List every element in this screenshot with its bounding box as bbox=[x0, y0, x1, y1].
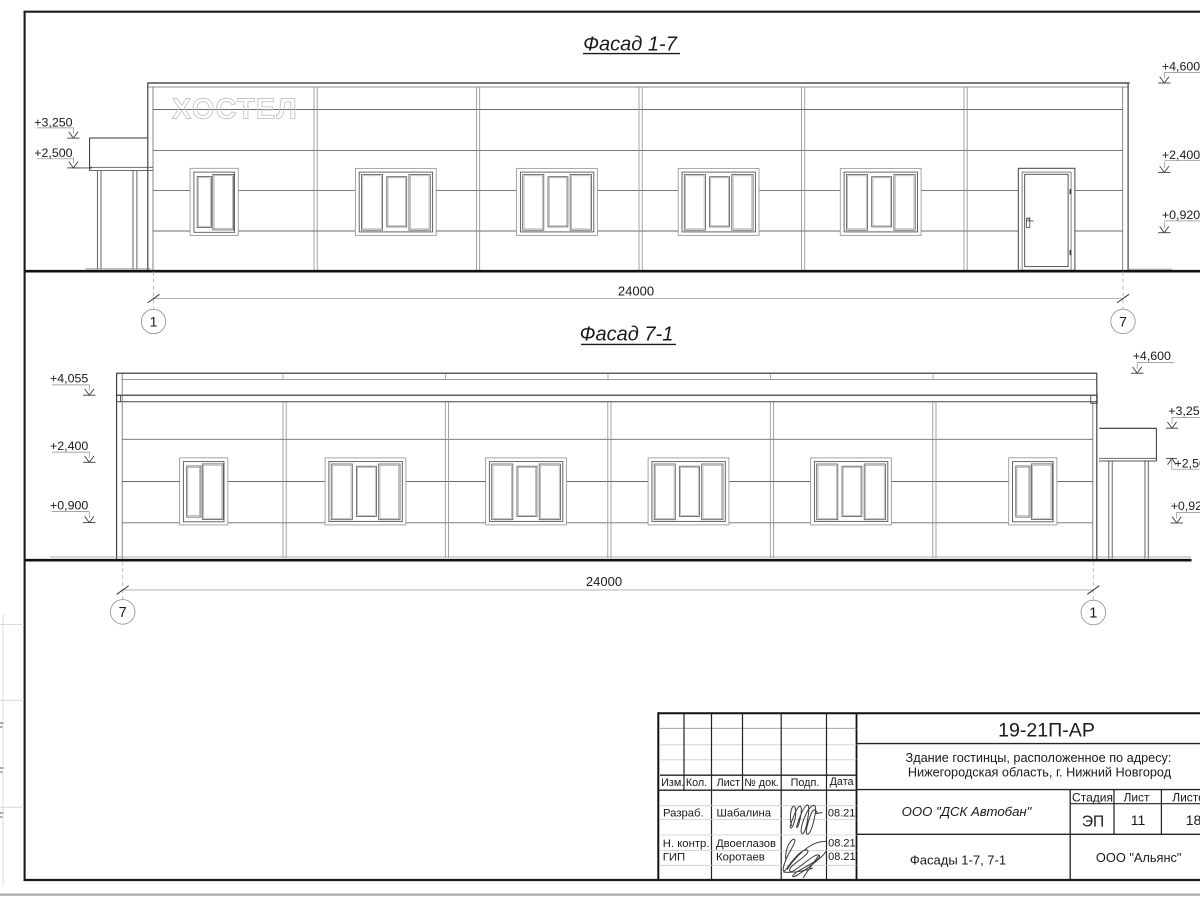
svg-text:+4,600: +4,600 bbox=[1133, 349, 1171, 363]
svg-text:08.21: 08.21 bbox=[828, 837, 856, 849]
svg-text:ООО "ДСК Автобан": ООО "ДСК Автобан" bbox=[902, 804, 1033, 819]
svg-text:Листов: Листов bbox=[1172, 791, 1200, 805]
svg-text:Кол.: Кол. bbox=[686, 777, 707, 789]
svg-text:08.21: 08.21 bbox=[828, 807, 856, 819]
svg-text:Коротаев: Коротаев bbox=[716, 851, 765, 863]
svg-text:Здание гостинцы, расположенное: Здание гостинцы, расположенное по адресу… bbox=[906, 751, 1172, 765]
svg-text:Стадия: Стадия bbox=[1072, 791, 1113, 805]
svg-text:Фасад 1-7: Фасад 1-7 bbox=[583, 34, 678, 56]
svg-text:Н. контр.: Н. контр. bbox=[663, 838, 710, 850]
svg-text:Фасад 7-1: Фасад 7-1 bbox=[580, 324, 674, 346]
svg-text:ГИП: ГИП bbox=[663, 851, 685, 863]
svg-text:+0,92: +0,92 bbox=[1171, 499, 1200, 513]
svg-text:ХОСТЕЛ: ХОСТЕЛ bbox=[172, 94, 298, 126]
svg-text:Нижегородская область, г. Нижн: Нижегородская область, г. Нижний Новгоро… bbox=[908, 765, 1172, 779]
svg-text:24000: 24000 bbox=[618, 284, 654, 299]
svg-text:19-21П-АР: 19-21П-АР bbox=[998, 719, 1095, 741]
svg-text:08.21: 08.21 bbox=[828, 851, 856, 863]
svg-text:+4,055: +4,055 bbox=[50, 372, 88, 386]
svg-text:Лист: Лист bbox=[1123, 791, 1150, 805]
svg-text:+0,920: +0,920 bbox=[1162, 208, 1200, 222]
svg-text:24000: 24000 bbox=[586, 574, 622, 589]
svg-text:+2,400: +2,400 bbox=[50, 439, 88, 453]
svg-text:ЭП: ЭП bbox=[1082, 813, 1104, 830]
svg-text:Двоеглазов: Двоеглазов bbox=[716, 838, 776, 850]
svg-text:№ док.: № док. bbox=[744, 777, 779, 789]
svg-text:Фасады 1-7, 7-1: Фасады 1-7, 7-1 bbox=[910, 852, 1006, 867]
svg-text:Изм.: Изм. bbox=[661, 777, 684, 789]
svg-text:+2,400: +2,400 bbox=[1162, 148, 1200, 162]
svg-text:7: 7 bbox=[119, 605, 127, 621]
svg-text:Подп.: Подп. bbox=[791, 777, 820, 789]
svg-text:1: 1 bbox=[150, 314, 158, 330]
svg-text:18: 18 bbox=[1186, 812, 1200, 828]
svg-text:+3,250: +3,250 bbox=[34, 116, 72, 130]
svg-text:Лист: Лист bbox=[717, 777, 741, 789]
svg-text:+0,900: +0,900 bbox=[50, 498, 88, 512]
svg-text:Разраб.: Разраб. bbox=[663, 808, 704, 820]
svg-text:1: 1 bbox=[1089, 606, 1097, 622]
svg-text:ООО "Альянс": ООО "Альянс" bbox=[1096, 850, 1182, 865]
svg-text:Шабалина: Шабалина bbox=[717, 808, 772, 820]
svg-text:Дата: Дата bbox=[830, 776, 854, 788]
svg-text:+2,500: +2,500 bbox=[34, 146, 72, 160]
svg-text:+3,250: +3,250 bbox=[1168, 404, 1200, 418]
svg-text:+2,50: +2,50 bbox=[1175, 457, 1200, 471]
svg-text:+4,600: +4,600 bbox=[1162, 59, 1200, 73]
svg-text:11: 11 bbox=[1131, 812, 1146, 828]
svg-text:7: 7 bbox=[1119, 313, 1127, 329]
